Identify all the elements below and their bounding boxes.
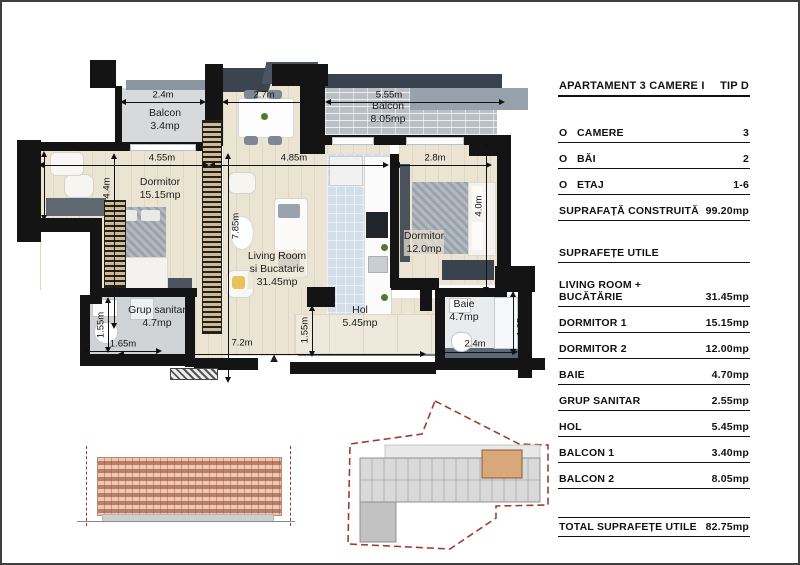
room-label-bedroom1: Dormitor 15.15mp [140, 176, 181, 202]
dim-line [513, 295, 514, 351]
dim-label: 2.7m [253, 90, 274, 101]
outside-patch [41, 232, 90, 302]
dim-label: 7.85m [231, 213, 242, 239]
window [406, 137, 464, 145]
room-area: 12.0mp [406, 243, 441, 255]
floorplan-sheet: ▲ Balcon 3.4mp Balcon 8.05mp Dormitor 15… [0, 0, 800, 565]
area-label: BALCON 2 [559, 473, 614, 485]
spec-row-camere: OCAMERE 3 [558, 127, 750, 143]
room-label-balcony2: Balcon 8.05mp [370, 100, 405, 126]
dim-line [213, 165, 385, 166]
desk [46, 198, 106, 216]
room-name: Balcon [372, 100, 404, 112]
wall [90, 60, 116, 88]
area-value: 15.15mp [706, 317, 749, 329]
plant-pot [381, 294, 388, 301]
dim-label: 1.65m [110, 339, 136, 350]
panel-title: APARTAMENT 3 CAMERE I TIP D [558, 80, 750, 97]
dim-label: 2.4m [464, 339, 485, 350]
dim-line [398, 165, 488, 166]
dim-label: 4.85m [281, 153, 307, 164]
elevation-axis-line [290, 446, 291, 526]
spec-bullet: O [559, 127, 577, 139]
roof-slab [410, 88, 528, 110]
wall [290, 362, 436, 374]
room-name2: si Bucatarie [250, 263, 305, 275]
area-label: BAIE [559, 369, 585, 381]
spec-value: 3 [743, 127, 749, 139]
highlighted-unit [482, 450, 522, 478]
dim-label: 4.4m [102, 177, 113, 198]
slat-wall [202, 120, 222, 334]
room-area: 31.45mp [257, 276, 298, 288]
dim-line [226, 102, 302, 103]
spec-label: BĂI [577, 153, 596, 165]
area-label: DORMITOR 2 [559, 343, 627, 355]
room-name: Grup sanitar [128, 304, 186, 316]
pillow [141, 210, 160, 221]
desk-chair [64, 174, 94, 198]
area-label: HOL [559, 421, 582, 433]
area-row: BAIE 4.70mp [558, 369, 750, 385]
area-row: DORMITOR 1 15.15mp [558, 317, 750, 333]
spec-value: 2 [743, 153, 749, 165]
plant-pot [381, 244, 388, 251]
dim-line [486, 145, 487, 289]
wardrobe [104, 200, 126, 288]
area-label: BALCON 1 [559, 447, 614, 459]
dim-label: 4.0m [474, 195, 485, 216]
area-value: 31.45mp [706, 291, 749, 303]
roof-slab [324, 74, 502, 88]
room-area: 3.4mp [150, 120, 179, 132]
spec-label: SUPRAFAȚĂ CONSTRUITĂ [559, 205, 699, 217]
wall [435, 288, 507, 297]
fridge [329, 156, 363, 186]
spec-label: ETAJ [577, 179, 604, 191]
room-label-bath: Baie 4.7mp [449, 298, 478, 324]
area-label: DORMITOR 1 [559, 317, 627, 329]
dim-label: 5.55m [376, 90, 402, 101]
room-area: 4.7mp [142, 317, 171, 329]
area-row: GRUP SANITAR 2.55mp [558, 395, 750, 411]
spec-row-suprafata-construita: SUPRAFAȚĂ CONSTRUITĂ 99.20mp [558, 205, 750, 221]
spec-value: 99.20mp [706, 205, 749, 217]
area-row: LIVING ROOM + BUCĂTĂRIE 31.45mp [558, 279, 750, 307]
spec-row-etaj: OETAJ 1-6 [558, 179, 750, 195]
wall [435, 288, 445, 358]
area-value: 12.00mp [706, 343, 749, 355]
dining-chair [244, 136, 258, 145]
dim-label: 7.2m [231, 338, 252, 349]
sofa-cushion [278, 204, 300, 218]
site-plan [330, 390, 552, 562]
room-name: Dormitor [140, 176, 180, 188]
area-value: 4.70mp [712, 369, 749, 381]
north-arrow: ▲ [268, 350, 281, 366]
dim-label: 1.95m [516, 310, 527, 336]
total-label: TOTAL SUPRAFEȚE UTILE [559, 521, 697, 533]
area-value: 8.05mp [712, 473, 749, 485]
area-row: DORMITOR 2 12.00mp [558, 343, 750, 359]
wall [435, 358, 545, 370]
wall [115, 86, 122, 144]
room-name: Balcon [149, 107, 181, 119]
cooktop [366, 212, 388, 238]
plant-pot [261, 113, 268, 120]
dim-label: 1.55m [300, 317, 311, 343]
dim-line [442, 352, 514, 353]
dim-label: 2.8m [424, 153, 445, 164]
area-label: GRUP SANITAR [559, 395, 640, 407]
panel-title-left: APARTAMENT 3 CAMERE I [559, 80, 705, 92]
pillow [472, 222, 483, 250]
dim-line [312, 309, 313, 353]
room-label-balcony1: Balcon 3.4mp [149, 107, 181, 133]
spec-bullet: O [559, 179, 577, 191]
spec-row-bai: OBĂI 2 [558, 153, 750, 169]
dim-label: 2.1m [32, 175, 43, 196]
panel-title-right: TIP D [720, 80, 749, 92]
sink [368, 256, 388, 273]
wall [272, 64, 328, 86]
room-area: 15.15mp [140, 189, 181, 201]
apartment-data-panel: APARTAMENT 3 CAMERE I TIP D OCAMERE 3 OB… [558, 80, 750, 537]
armchair-cushion [232, 276, 245, 289]
dining-chair [268, 136, 282, 145]
area-row: BALCON 2 8.05mp [558, 473, 750, 489]
spec-bullet: O [559, 153, 577, 165]
spec-value: 1-6 [733, 179, 749, 191]
room-label-wc: Grup sanitar 4.7mp [128, 304, 186, 330]
dim-line [124, 102, 202, 103]
area-row: BALCON 1 3.40mp [558, 447, 750, 463]
room-name: Living Room [248, 250, 306, 262]
dim-line [44, 155, 45, 217]
room-name: Dormitor [404, 230, 444, 242]
wall [390, 154, 399, 288]
total-row: TOTAL SUPRAFEȚE UTILE 82.75mp [558, 517, 750, 537]
roof-slab [126, 80, 206, 90]
armchair [50, 152, 84, 176]
wall [80, 354, 194, 366]
room-label-hall: Hol 5.45mp [342, 304, 377, 330]
section-header: SUPRAFEȚE UTILE [558, 247, 750, 263]
dim-label: 1.55m [96, 312, 107, 338]
wall [420, 285, 432, 311]
window [130, 144, 196, 151]
spec-label: CAMERE [577, 127, 624, 139]
elevation-facade [97, 457, 282, 516]
room-name: Baie [453, 298, 474, 310]
dim-line [228, 157, 229, 379]
dim-line [42, 165, 205, 166]
dim-label: 2.4m [152, 90, 173, 101]
window [332, 137, 374, 145]
total-value: 82.75mp [706, 521, 749, 533]
area-label: LIVING ROOM + BUCĂTĂRIE [559, 279, 706, 303]
room-label-living: Living Room si Bucatarie 31.45mp [248, 250, 306, 289]
dim-line [114, 157, 115, 325]
room-label-bedroom2: Dormitor 12.0mp [404, 230, 444, 256]
room-area: 4.7mp [449, 311, 478, 323]
room-area: 8.05mp [370, 113, 405, 125]
entrance-sill [170, 368, 218, 380]
dim-label: 4.55m [149, 153, 175, 164]
shower [494, 297, 518, 349]
area-row: HOL 5.45mp [558, 421, 750, 437]
room-name: Hol [352, 304, 368, 316]
area-value: 5.45mp [712, 421, 749, 433]
area-value: 2.55mp [712, 395, 749, 407]
ground-line [77, 521, 295, 522]
elevation-axis-line [86, 446, 87, 526]
dim-line [329, 102, 501, 103]
side-chair [228, 172, 256, 194]
room-area: 5.45mp [342, 317, 377, 329]
area-value: 3.40mp [712, 447, 749, 459]
